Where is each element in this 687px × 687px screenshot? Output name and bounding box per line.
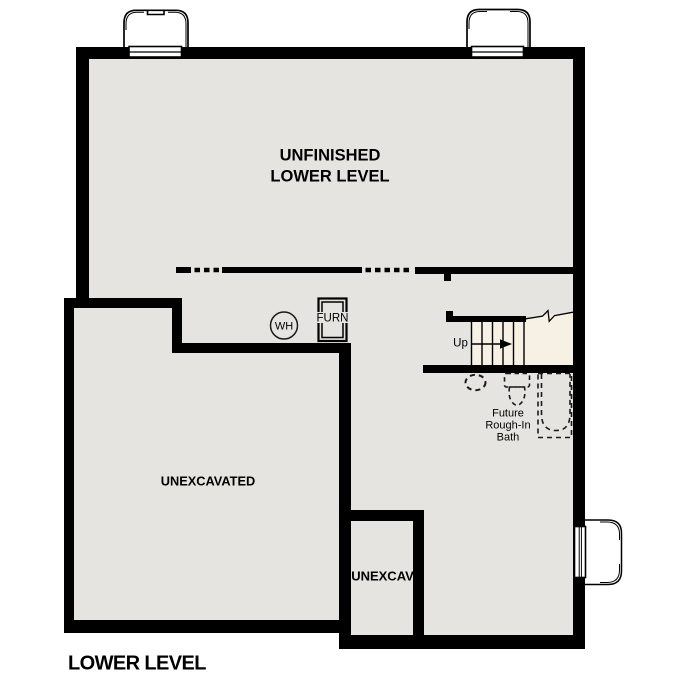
svg-text:Bath: Bath (497, 431, 520, 443)
svg-text:WH: WH (275, 321, 293, 333)
svg-text:UNFINISHED: UNFINISHED (280, 147, 381, 165)
svg-text:UNEXCAV: UNEXCAV (351, 569, 414, 584)
svg-text:Rough-In: Rough-In (485, 419, 530, 431)
svg-text:Up: Up (453, 338, 468, 350)
svg-text:FURN: FURN (317, 313, 349, 325)
svg-text:LOWER LEVEL: LOWER LEVEL (68, 653, 206, 675)
svg-text:UNEXCAVATED: UNEXCAVATED (161, 473, 256, 488)
svg-text:LOWER LEVEL: LOWER LEVEL (270, 168, 389, 186)
svg-text:Future: Future (492, 407, 524, 419)
